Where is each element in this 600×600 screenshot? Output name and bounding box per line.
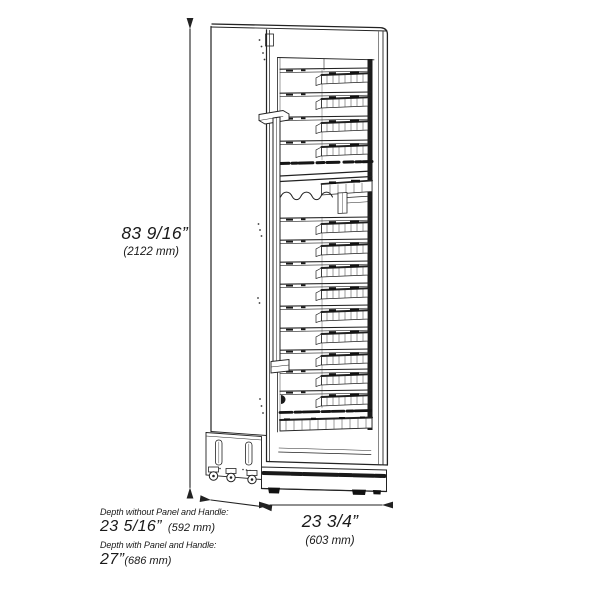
width-dimension-label: 23 3/4” (603 mm) — [270, 512, 390, 548]
depth-without-panel-value: 23 5/16” (592 mm) — [100, 518, 215, 536]
display-shelf-zone — [280, 162, 372, 214]
height-imperial: 83 9/16” — [56, 224, 188, 242]
depth-with-panel-imperial: 27” — [100, 551, 124, 569]
height-metric: (2122 mm) — [56, 246, 188, 259]
wine-cooler-line-drawing — [0, 0, 600, 600]
width-metric: (603 mm) — [270, 535, 390, 548]
width-imperial: 23 3/4” — [270, 512, 390, 530]
door-handle — [259, 111, 289, 374]
hinge-dots — [257, 39, 265, 414]
depth-without-panel-label: Depth without Panel and Handle: — [100, 507, 229, 517]
front-base — [262, 467, 387, 495]
compressor-compartment — [206, 433, 262, 484]
depth-with-panel-label: Depth with Panel and Handle: — [100, 540, 216, 550]
shelf-rows — [280, 68, 371, 408]
spec-sheet-page: 83 9/16” (2122 mm) 23 3/4” (603 mm) Dept… — [0, 0, 600, 600]
depth-dimension-arrow — [211, 500, 261, 507]
depth-without-panel-imperial: 23 5/16” — [100, 518, 162, 536]
depth-with-panel-value: 27” (686 mm) — [100, 551, 171, 569]
door-lock — [281, 395, 286, 404]
depth-without-panel-metric: (592 mm) — [168, 522, 215, 534]
depth-with-panel-metric: (686 mm) — [124, 555, 171, 567]
height-dimension-label: 83 9/16” (2122 mm) — [56, 224, 188, 259]
